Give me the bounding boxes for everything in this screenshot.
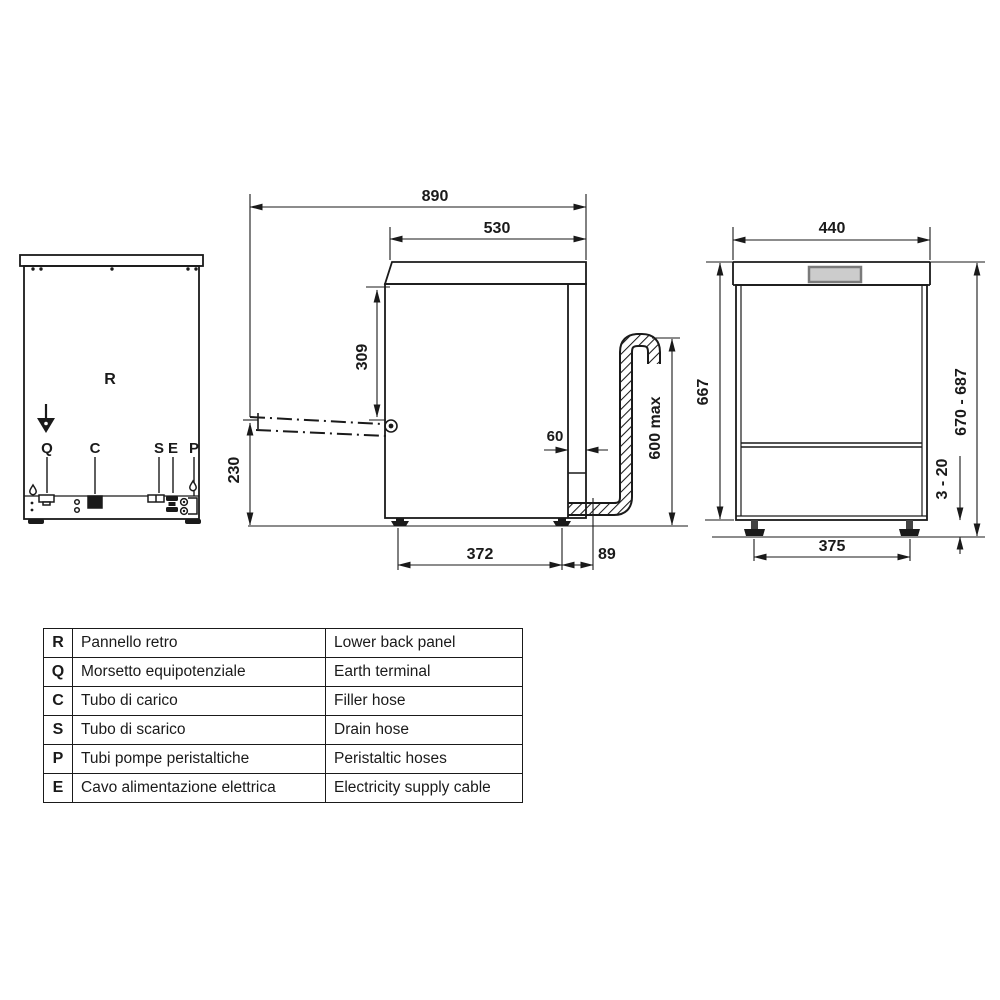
rear-panel-label: R [104,371,116,388]
side-feet [391,518,571,526]
legend-english: Electricity supply cable [326,774,523,803]
dim-feet-adjust-range: 3 - 20 [934,458,951,499]
front-body-outline [736,285,927,520]
rear-top-strip [20,255,203,266]
dim-overall-height: 670 - 687 [953,368,970,436]
legend-english: Earth terminal [326,658,523,687]
rear-hole [75,508,80,513]
rear-view-drawing: R Q C S E P [20,255,203,524]
legend-english: Filler hose [326,687,523,716]
legend-table: R Pannello retro Lower back panel Q Mors… [43,628,523,803]
legend-italian: Pannello retro [73,629,326,658]
dim-rear-overhang: 89 [598,546,616,563]
rear-connectors [30,481,197,514]
dim-body-height: 667 [695,379,712,406]
legend-italian: Tubo di scarico [73,716,326,745]
legend-italian: Tubi pompe peristaltiche [73,745,326,774]
dim-width: 440 [819,220,846,237]
dim-top-to-hinge: 309 [354,344,371,371]
legend-english: Peristaltic hoses [326,745,523,774]
legend-code: R [44,629,73,658]
legend-italian: Cavo alimentazione elettrica [73,774,326,803]
dim-feet-depth-spacing: 372 [467,546,494,563]
legend-code: Q [44,658,73,687]
rear-screws [31,267,197,270]
filler-hose-label: C [90,440,101,457]
earth-terminal-label: Q [41,440,53,457]
front-feet [744,520,920,536]
legend-italian: Morsetto equipotenziale [73,658,326,687]
dim-drain-max-height: 600 max [647,396,664,459]
open-door-outline [250,417,387,436]
water-drop-icon [190,481,196,491]
front-view-drawing: 440 667 670 - 687 3 - 20 375 [695,220,985,561]
supply-cable-gland [166,496,178,512]
legend-italian: Tubo di carico [73,687,326,716]
dim-feet-width-spacing: 375 [819,538,846,555]
drain-hose-label: S [154,440,164,457]
legend-code: C [44,687,73,716]
side-body-outline [385,284,586,518]
filler-hose-connector [88,496,102,508]
dim-depth-door-open: 890 [422,188,449,205]
legend-row: E Cavo alimentazione elettrica Electrici… [44,774,523,803]
legend-row: C Tubo di carico Filler hose [44,687,523,716]
water-drop-icon [30,485,36,495]
legend-code: E [44,774,73,803]
side-view-drawing: 890 530 309 230 60 600 max 372 89 [226,188,688,570]
earth-symbol-icon [37,404,55,433]
peristaltic-label: P [189,440,199,457]
dim-door-open-height: 230 [226,457,243,484]
side-top-cap [385,262,586,284]
legend-code: P [44,745,73,774]
earth-terminal-connector [39,495,54,502]
supply-cable-label: E [168,440,178,457]
earth-terminal-lug [43,502,50,505]
dim-depth: 530 [484,220,511,237]
legend-english: Lower back panel [326,629,523,658]
technical-drawing-sheet: R Q C S E P [0,0,1000,1000]
legend-english: Drain hose [326,716,523,745]
control-panel-display [809,267,861,282]
rear-leader-lines [47,457,194,496]
dishwasher-dimension-drawing: R Q C S E P [0,0,1000,620]
legend-row: P Tubi pompe peristaltiche Peristaltic h… [44,745,523,774]
drain-hose-shape [568,340,654,509]
legend-code: S [44,716,73,745]
legend-row: S Tubo di scarico Drain hose [44,716,523,745]
legend-row: Q Morsetto equipotenziale Earth terminal [44,658,523,687]
peristaltic-bracket [188,498,197,514]
dim-rear-gap: 60 [547,428,564,445]
legend-row: R Pannello retro Lower back panel [44,629,523,658]
rear-hole [75,500,80,505]
